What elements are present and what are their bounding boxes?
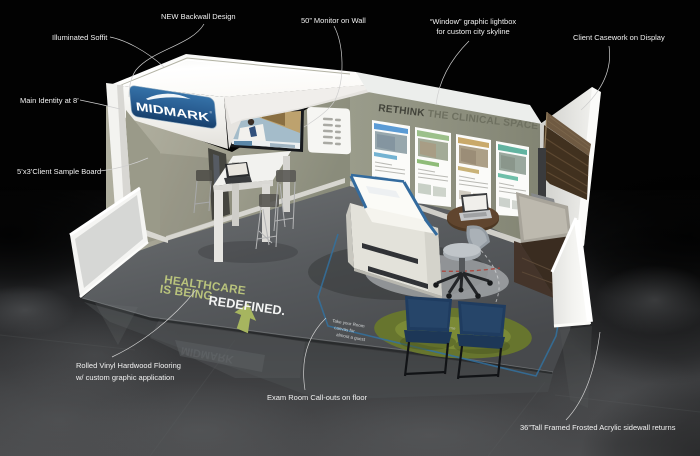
- svg-text:“Window” graphic lightbox: “Window” graphic lightbox: [430, 17, 517, 26]
- svg-text:36”Tall Framed Frosted Acrylic: 36”Tall Framed Frosted Acrylic sidewall …: [520, 423, 676, 432]
- svg-text:Client Casework on Display: Client Casework on Display: [573, 33, 665, 42]
- svg-text:Rolled Vinyl Hardwood Flooring: Rolled Vinyl Hardwood Flooring: [76, 361, 181, 370]
- svg-text:50” Monitor on Wall: 50” Monitor on Wall: [301, 16, 366, 25]
- svg-text:NEW Backwall Design: NEW Backwall Design: [161, 12, 236, 21]
- svg-text:5’x3’Client Sample Board: 5’x3’Client Sample Board: [17, 167, 101, 176]
- svg-text:Illuminated Soffit: Illuminated Soffit: [52, 33, 108, 42]
- svg-text:for custom city skyline: for custom city skyline: [436, 27, 509, 36]
- svg-text:Exam Room Call-outs on floor: Exam Room Call-outs on floor: [267, 393, 368, 402]
- svg-text:w/ custom graphic application: w/ custom graphic application: [75, 373, 174, 382]
- svg-text:Main Identity at 8’: Main Identity at 8’: [20, 96, 79, 105]
